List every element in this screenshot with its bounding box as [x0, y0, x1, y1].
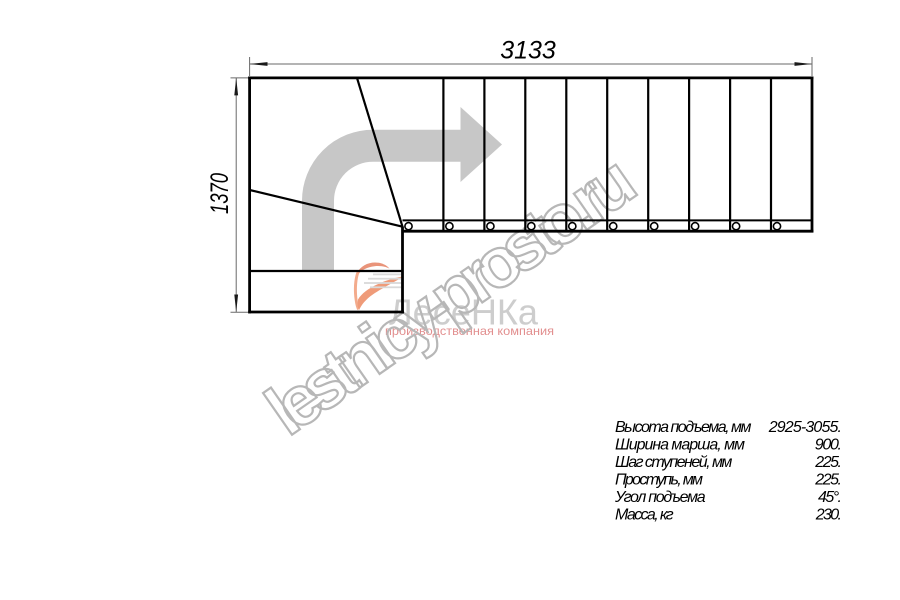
svg-text:Шаг ступеней, мм: Шаг ступеней, мм: [615, 454, 732, 471]
svg-text:2925-3055.: 2925-3055.: [768, 419, 842, 436]
svg-text:230.: 230.: [815, 507, 842, 524]
svg-text:45°.: 45°.: [818, 489, 842, 506]
svg-text:1370: 1370: [206, 173, 234, 214]
svg-text:Проступь, мм: Проступь, мм: [615, 472, 703, 489]
svg-text:900.: 900.: [815, 436, 842, 453]
svg-text:Угол подъема: Угол подъема: [614, 489, 706, 506]
svg-text:225.: 225.: [814, 454, 842, 471]
svg-text:Масса, кг: Масса, кг: [615, 507, 674, 524]
svg-text:225.: 225.: [814, 472, 842, 489]
svg-text:3133: 3133: [500, 37, 556, 65]
svg-text:Ширина марша, мм: Ширина марша, мм: [615, 436, 745, 453]
svg-text:Высота подъема, мм: Высота подъема, мм: [615, 419, 752, 436]
